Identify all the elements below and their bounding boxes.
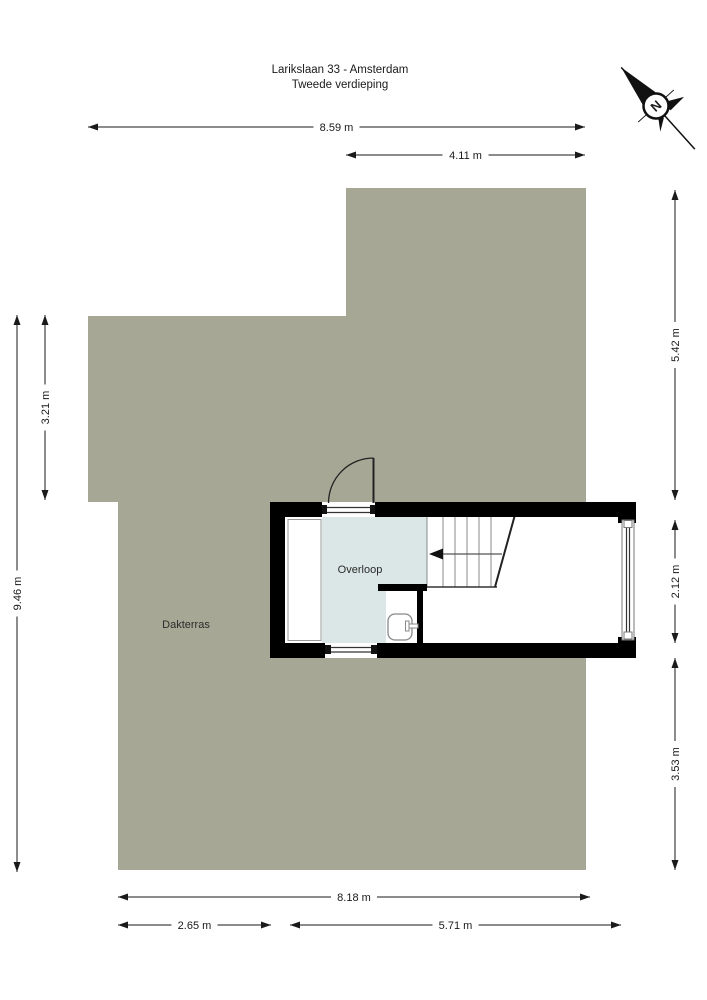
dim-height-right-lower: 3.53 m: [669, 658, 682, 870]
dim-height-right-lower-label: 3.53 m: [670, 747, 682, 781]
toilet-right-wall: [417, 590, 423, 643]
compass-rose: N: [603, 49, 707, 165]
toilet-top-wall: [378, 584, 427, 591]
dim-width-total-label: 8.59 m: [320, 122, 354, 134]
floor-plan-svg: Larikslaan 33 - Amsterdam Tweede verdiep…: [0, 0, 707, 1000]
dim-height-right-mid: 2.12 m: [669, 520, 682, 643]
dim-height-right-upper: 5.42 m: [669, 190, 682, 500]
wall-left: [270, 502, 285, 658]
dakterras-label: Dakterras: [162, 619, 210, 631]
dim-width-bottom-left-label: 2.65 m: [178, 920, 212, 932]
dim-height-left-total: 9.46 m: [11, 315, 24, 872]
right-window: [622, 520, 634, 640]
dim-height-left-upper: 3.21 m: [39, 315, 52, 500]
dim-width-upper: 4.11 m: [346, 149, 585, 163]
plan-subtitle: Tweede verdieping: [292, 79, 389, 91]
dim-width-bottom-right-label: 5.71 m: [439, 920, 473, 932]
plan-title: Larikslaan 33 - Amsterdam: [272, 64, 409, 76]
door-opening: [322, 502, 375, 517]
dim-height-left-upper-label: 3.21 m: [40, 391, 52, 425]
dim-width-bottom-total-label: 8.18 m: [337, 892, 371, 904]
bottom-window: [325, 643, 377, 658]
dim-width-bottom-left: 2.65 m: [118, 919, 271, 933]
dim-width-upper-label: 4.11 m: [449, 150, 482, 162]
dim-width-bottom-right: 5.71 m: [290, 919, 621, 933]
dim-width-bottom-total: 8.18 m: [118, 891, 590, 905]
dim-width-total: 8.59 m: [88, 121, 585, 135]
dim-height-left-total-label: 9.46 m: [12, 577, 24, 611]
overloop-label: Overloop: [338, 564, 383, 576]
closet-room: [288, 520, 321, 641]
dim-height-right-upper-label: 5.42 m: [670, 328, 682, 362]
dim-height-right-mid-label: 2.12 m: [670, 565, 682, 599]
floor-plan-page: Larikslaan 33 - Amsterdam Tweede verdiep…: [0, 0, 707, 1000]
wall-bottom: [270, 643, 636, 658]
